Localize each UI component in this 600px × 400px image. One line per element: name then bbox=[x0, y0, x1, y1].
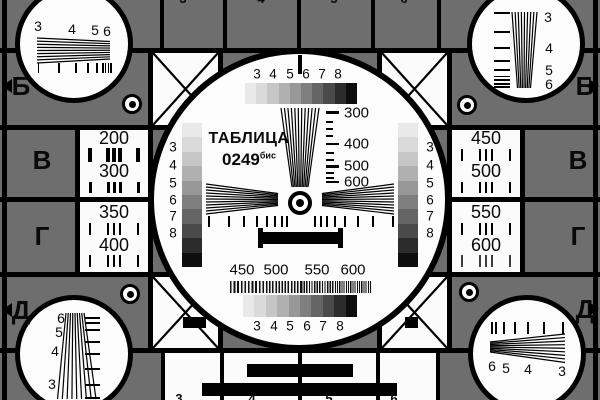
tick-mark bbox=[494, 86, 510, 88]
frequency-label: 300 bbox=[344, 105, 369, 120]
resolution-bars bbox=[485, 149, 487, 161]
resolution-bars bbox=[89, 255, 92, 267]
resolution-bars bbox=[119, 182, 122, 193]
grayscale-label-top: 6 bbox=[302, 67, 310, 81]
tick-mark bbox=[494, 60, 510, 62]
bottom-black-bar bbox=[247, 364, 353, 377]
resolution-bars bbox=[89, 182, 92, 193]
corner-cell-black-rect bbox=[405, 317, 418, 328]
side-scale-label-right: 8 bbox=[426, 226, 434, 240]
side-scale-label-left: 5 bbox=[169, 176, 177, 190]
tick-mark bbox=[326, 128, 333, 130]
resolution-bars bbox=[119, 255, 122, 267]
resolution-bars bbox=[491, 182, 493, 193]
grayscale-step bbox=[289, 295, 301, 317]
tick-mark bbox=[85, 384, 100, 386]
resolution-number: 450 bbox=[471, 129, 501, 147]
reflection-bar bbox=[261, 232, 339, 244]
grid-line bbox=[75, 125, 80, 277]
tick-mark bbox=[96, 63, 98, 73]
resolution-bars bbox=[479, 255, 481, 267]
tick-mark bbox=[256, 216, 258, 227]
burst-segment bbox=[266, 281, 302, 293]
grayscale-step bbox=[398, 238, 418, 253]
tick-mark bbox=[281, 216, 283, 227]
side-scale-label-right: 4 bbox=[426, 158, 434, 172]
tick-mark bbox=[494, 47, 510, 49]
row-label-left: В bbox=[33, 147, 52, 173]
grayscale-step bbox=[398, 224, 418, 239]
arrow-right-icon bbox=[589, 302, 599, 316]
edge-digit-bottom: 3 bbox=[175, 392, 182, 400]
resolution-number: 400 bbox=[99, 236, 129, 254]
bullseye-mark bbox=[120, 284, 140, 304]
corner-wedge-label-top-left: 5 bbox=[91, 23, 99, 37]
side-scale-label-left: 3 bbox=[169, 140, 177, 154]
tick-mark bbox=[326, 135, 333, 137]
tick-mark bbox=[491, 322, 493, 334]
corner-wedge-label-top-right: 5 bbox=[545, 63, 553, 77]
resolution-bars bbox=[491, 255, 493, 267]
corner-circle-top-right bbox=[467, 0, 585, 103]
grayscale-step bbox=[398, 209, 418, 224]
grayscale-step bbox=[301, 83, 313, 104]
side-scale-label-left: 7 bbox=[169, 209, 177, 223]
resolution-bars bbox=[509, 255, 511, 267]
tick-mark bbox=[334, 216, 336, 227]
tick-mark bbox=[85, 341, 100, 343]
edge-digit-top: 6 bbox=[400, 0, 407, 5]
bullseye-mark bbox=[457, 95, 477, 115]
grayscale-step bbox=[266, 295, 278, 317]
corner-wedge-label-bottom-right: 4 bbox=[524, 362, 532, 376]
resolution-bars bbox=[137, 255, 140, 267]
tick-mark bbox=[85, 317, 100, 319]
corner-wedge-label-top-right: 6 bbox=[545, 77, 553, 91]
corner-circle-bottom-left bbox=[15, 295, 133, 400]
grayscale-step bbox=[323, 83, 335, 104]
tick-mark bbox=[85, 368, 100, 370]
tick-mark bbox=[320, 216, 322, 227]
resolution-bars bbox=[491, 223, 493, 235]
row-label-left: Г bbox=[35, 223, 50, 249]
side-scale-label-right: 3 bbox=[426, 140, 434, 154]
row-label-right: Г bbox=[571, 223, 586, 249]
tick-mark bbox=[326, 121, 333, 123]
tick-mark bbox=[314, 216, 316, 227]
tick-mark bbox=[494, 76, 510, 78]
tick-mark bbox=[494, 31, 510, 33]
grayscale-step bbox=[346, 83, 358, 104]
tick-mark bbox=[357, 216, 359, 227]
tick-mark bbox=[108, 63, 110, 73]
test-card: ТАБЛИЦА 0249бис 345678345678334455667788… bbox=[0, 0, 600, 400]
resolution-bars bbox=[137, 182, 140, 193]
grayscale-step bbox=[182, 238, 202, 253]
tick-mark bbox=[494, 69, 510, 71]
grayscale-step bbox=[182, 166, 202, 181]
grayscale-step bbox=[182, 123, 202, 138]
tick-mark bbox=[87, 63, 89, 73]
tick-mark bbox=[266, 216, 268, 227]
tick-mark bbox=[110, 63, 112, 73]
burst-label: 450 bbox=[229, 263, 254, 278]
tick-mark bbox=[102, 63, 104, 73]
resolution-bars bbox=[113, 223, 116, 235]
grayscale-step bbox=[398, 123, 418, 138]
burst-label: 550 bbox=[304, 263, 329, 278]
grayscale-step bbox=[279, 83, 291, 104]
corner-wedge-label-top-right: 4 bbox=[545, 41, 553, 55]
tick-mark bbox=[494, 12, 510, 14]
resolution-bars bbox=[89, 223, 92, 235]
grayscale-step bbox=[245, 83, 257, 104]
grayscale-step bbox=[256, 83, 268, 104]
tick-mark bbox=[562, 322, 564, 334]
reflection-bar-cap bbox=[258, 228, 263, 248]
resolution-bars bbox=[461, 182, 463, 193]
resolution-bars bbox=[118, 148, 122, 162]
tick-mark bbox=[344, 216, 346, 227]
grayscale-step bbox=[398, 195, 418, 210]
card-title-number: 0249бис bbox=[203, 150, 295, 170]
side-scale-label-left: 4 bbox=[169, 158, 177, 172]
grayscale-step bbox=[398, 253, 418, 268]
burst-label: 600 bbox=[340, 263, 365, 278]
grayscale-step bbox=[182, 253, 202, 268]
tick-mark bbox=[326, 165, 339, 168]
resolution-bars bbox=[479, 149, 481, 161]
edge-digit-top: 5 bbox=[330, 0, 337, 5]
frequency-label: 400 bbox=[344, 136, 369, 151]
arrow-left-icon bbox=[2, 303, 12, 317]
tick-mark bbox=[527, 322, 529, 334]
tick-mark bbox=[326, 143, 339, 146]
resolution-bars bbox=[112, 148, 116, 162]
frequency-label: 500 bbox=[344, 159, 369, 174]
corner-circle-top-left bbox=[15, 0, 133, 103]
grayscale-step bbox=[182, 152, 202, 167]
card-title-suffix: бис bbox=[260, 150, 276, 160]
grayscale-step bbox=[243, 295, 255, 317]
resolution-bars bbox=[119, 223, 122, 235]
tick-mark bbox=[326, 111, 339, 114]
tick-mark bbox=[494, 79, 510, 81]
card-title-text: ТАБЛИЦА bbox=[203, 130, 295, 148]
corner-wedge-label-bottom-left: 3 bbox=[48, 377, 56, 391]
edge-digit-top: 4 bbox=[257, 0, 264, 5]
resolution-bars bbox=[461, 149, 463, 161]
grayscale-label-bottom: 5 bbox=[286, 319, 294, 333]
tick-mark bbox=[228, 216, 230, 227]
resolution-bars bbox=[107, 255, 110, 267]
reflection-bar-cap bbox=[338, 228, 343, 248]
grayscale-label-bottom: 3 bbox=[253, 319, 261, 333]
grayscale-step bbox=[182, 224, 202, 239]
grid-line bbox=[161, 353, 165, 400]
burst-segment bbox=[337, 281, 373, 293]
resolution-bars bbox=[485, 223, 487, 235]
side-scale-label-left: 8 bbox=[169, 226, 177, 240]
side-scale-label-left: 6 bbox=[169, 193, 177, 207]
tick-mark bbox=[326, 159, 334, 161]
tick-mark bbox=[326, 172, 334, 174]
grid-line bbox=[520, 125, 525, 277]
grayscale-label-top: 7 bbox=[318, 67, 326, 81]
tick-mark bbox=[85, 353, 100, 355]
corner-wedge-label-bottom-left: 6 bbox=[57, 311, 65, 325]
grayscale-step bbox=[334, 295, 346, 317]
corner-wedge-label-top-left: 6 bbox=[103, 24, 111, 38]
grayscale-label-bottom: 7 bbox=[319, 319, 327, 333]
resolution-number: 500 bbox=[471, 162, 501, 180]
tick-mark bbox=[494, 83, 510, 85]
tick-mark bbox=[243, 216, 245, 227]
edge-digit-bottom: 6 bbox=[390, 392, 397, 400]
tick-mark bbox=[326, 177, 334, 179]
grayscale-step bbox=[323, 295, 335, 317]
corner-wedge-label-top-left: 3 bbox=[34, 19, 42, 33]
card-title: ТАБЛИЦА 0249бис bbox=[203, 130, 295, 170]
tick-mark bbox=[514, 322, 516, 334]
grayscale-step bbox=[254, 295, 266, 317]
corner-cell-black-rect bbox=[183, 317, 206, 328]
resolution-bars bbox=[106, 148, 110, 162]
frequency-label: 600 bbox=[344, 174, 369, 189]
grayscale-label-bottom: 4 bbox=[270, 319, 278, 333]
resolution-bars bbox=[509, 149, 511, 161]
tick-mark bbox=[85, 397, 100, 399]
grid-line bbox=[437, 0, 441, 48]
grid-line bbox=[297, 0, 301, 48]
side-scale-label-right: 5 bbox=[426, 176, 434, 190]
resolution-number: 550 bbox=[471, 203, 501, 221]
resolution-bars bbox=[88, 148, 92, 162]
corner-wedge-label-bottom-left: 5 bbox=[55, 325, 63, 339]
row-label-left: Б bbox=[12, 73, 31, 99]
bullseye-mark bbox=[122, 94, 142, 114]
grid-line bbox=[160, 0, 164, 48]
center-bullseye-mark bbox=[288, 191, 312, 215]
bullseye-mark bbox=[459, 282, 479, 302]
tick-mark bbox=[58, 63, 60, 73]
tick-mark bbox=[274, 216, 276, 227]
corner-wedge-label-bottom-right: 6 bbox=[488, 359, 496, 373]
resolution-number: 600 bbox=[471, 236, 501, 254]
corner-wedge-label-bottom-right: 3 bbox=[558, 364, 566, 378]
resolution-bars bbox=[485, 182, 487, 193]
grayscale-step bbox=[182, 137, 202, 152]
resolution-bars bbox=[461, 223, 463, 235]
arrow-right-icon bbox=[589, 79, 599, 93]
resolution-number: 200 bbox=[99, 129, 129, 147]
resolution-bars bbox=[509, 223, 511, 235]
grayscale-step bbox=[277, 295, 289, 317]
grayscale-label-bottom: 6 bbox=[303, 319, 311, 333]
edge-digit-top: 3 bbox=[179, 0, 186, 5]
tick-mark bbox=[326, 152, 334, 154]
tick-mark bbox=[543, 322, 545, 334]
resolution-bars bbox=[479, 182, 481, 193]
corner-wedge-label-bottom-right: 5 bbox=[502, 361, 510, 375]
resolution-bars bbox=[461, 255, 463, 267]
grayscale-step bbox=[335, 83, 347, 104]
grayscale-label-bottom: 8 bbox=[336, 319, 344, 333]
grayscale-label-top: 8 bbox=[334, 67, 342, 81]
tick-mark bbox=[372, 216, 374, 227]
resolution-bars bbox=[491, 149, 493, 161]
card-title-number-value: 0249 bbox=[222, 150, 260, 169]
tick-mark bbox=[85, 329, 100, 331]
resolution-number: 350 bbox=[99, 203, 129, 221]
grayscale-step bbox=[311, 295, 323, 317]
resolution-number: 300 bbox=[99, 162, 129, 180]
side-scale-label-right: 6 bbox=[426, 193, 434, 207]
grayscale-step bbox=[398, 181, 418, 196]
grayscale-step bbox=[398, 137, 418, 152]
burst-segment bbox=[301, 281, 337, 293]
tick-mark bbox=[85, 322, 100, 324]
tick-mark bbox=[38, 63, 40, 73]
grayscale-step bbox=[182, 195, 202, 210]
edge-digit-bottom: 4 bbox=[248, 392, 255, 400]
bottom-black-bar bbox=[202, 383, 397, 396]
grayscale-step bbox=[398, 166, 418, 181]
grayscale-step bbox=[182, 181, 202, 196]
tick-mark bbox=[495, 322, 497, 334]
grayscale-step bbox=[182, 209, 202, 224]
tick-mark bbox=[75, 63, 77, 73]
resolution-bars bbox=[107, 223, 110, 235]
side-scale-label-right: 7 bbox=[426, 209, 434, 223]
grid-line bbox=[371, 0, 375, 48]
tick-mark bbox=[208, 216, 210, 227]
tick-mark bbox=[503, 322, 505, 334]
corner-wedge-label-bottom-left: 4 bbox=[51, 344, 59, 358]
grayscale-step bbox=[267, 83, 279, 104]
resolution-bars bbox=[485, 255, 487, 267]
grayscale-step bbox=[290, 83, 302, 104]
resolution-bars bbox=[137, 223, 140, 235]
corner-wedge-label-top-right: 3 bbox=[544, 10, 552, 24]
edge-digit-bottom: 5 bbox=[325, 392, 332, 400]
row-label-left: Д bbox=[12, 297, 31, 323]
grid-line bbox=[436, 353, 440, 400]
tick-mark bbox=[326, 216, 328, 227]
corner-circle-bottom-right bbox=[468, 295, 586, 400]
corner-wedge-label-top-left: 4 bbox=[68, 22, 76, 36]
grayscale-label-top: 5 bbox=[286, 67, 294, 81]
resolution-bars bbox=[113, 182, 116, 193]
resolution-bars bbox=[509, 182, 511, 193]
tick-mark bbox=[286, 216, 288, 227]
resolution-bars bbox=[479, 223, 481, 235]
resolution-bars bbox=[107, 182, 110, 193]
grayscale-step bbox=[300, 295, 312, 317]
grid-line bbox=[223, 0, 227, 48]
grayscale-step bbox=[346, 295, 358, 317]
tick-mark bbox=[326, 181, 339, 184]
row-label-right: В bbox=[569, 147, 588, 173]
burst-label: 500 bbox=[263, 263, 288, 278]
burst-segment bbox=[230, 281, 266, 293]
arrow-left-icon bbox=[2, 79, 12, 93]
grayscale-label-top: 4 bbox=[269, 67, 277, 81]
grayscale-label-top: 3 bbox=[253, 67, 261, 81]
tick-mark bbox=[392, 216, 394, 227]
tick-mark bbox=[105, 63, 107, 73]
resolution-bars bbox=[113, 255, 116, 267]
grayscale-step bbox=[398, 152, 418, 167]
grayscale-step bbox=[312, 83, 324, 104]
resolution-bars bbox=[136, 148, 140, 162]
